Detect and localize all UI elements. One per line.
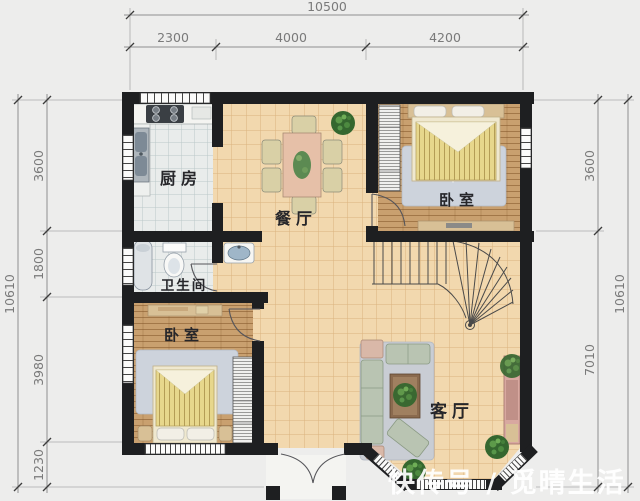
wardrobe-bedroom-left	[233, 357, 253, 444]
dim-left-seg-3: 3980	[31, 354, 46, 386]
window-bathroom-left	[123, 248, 133, 285]
porch-column-left	[266, 486, 280, 500]
plant-coffee-table	[393, 383, 417, 407]
room-label-bedroom-left: 卧室	[164, 326, 204, 344]
dim-left-seg-4: 1230	[31, 449, 46, 481]
dim-right-seg-1: 3600	[582, 150, 597, 182]
window-bedroom-left-wall	[123, 325, 133, 383]
plant-living-right	[485, 435, 509, 459]
watermark-text: 快传号 / 觅晴生活	[388, 468, 626, 499]
dim-left-total: 10610	[2, 274, 17, 314]
room-label-bathroom: 卫生间	[161, 277, 208, 294]
screenshot-root: 10500 2300 4000 4200 10610 3600 1800 398…	[0, 0, 640, 501]
dim-top-total: 10500	[307, 0, 347, 14]
porch-column-right	[332, 486, 346, 500]
dim-top-seg-3: 4200	[429, 30, 461, 45]
window-bedroom-right-wall	[521, 128, 531, 168]
dim-top-seg-2: 4000	[275, 30, 307, 45]
room-label-bedroom-right: 卧室	[439, 191, 479, 209]
window-kitchen-left	[123, 135, 133, 180]
dim-left-seg-2: 1800	[31, 248, 46, 280]
dim-left-seg-1: 3600	[31, 150, 46, 182]
window-kitchen-top	[140, 93, 210, 103]
wardrobe-bedroom-right	[379, 105, 400, 191]
dim-top-seg-1: 2300	[157, 30, 189, 45]
room-label-kitchen: 厨房	[160, 169, 202, 188]
dim-right-total: 10610	[612, 274, 627, 314]
floor-plan-svg: 10500 2300 4000 4200 10610 3600 1800 398…	[0, 0, 640, 501]
window-bedroom-left-bottom	[145, 444, 225, 454]
dim-right-seg-2: 7010	[582, 344, 597, 376]
toilet-tank	[163, 243, 186, 252]
room-label-living: 客厅	[429, 401, 474, 422]
room-label-dining: 餐厅	[274, 209, 317, 228]
plant-dining	[331, 111, 355, 135]
